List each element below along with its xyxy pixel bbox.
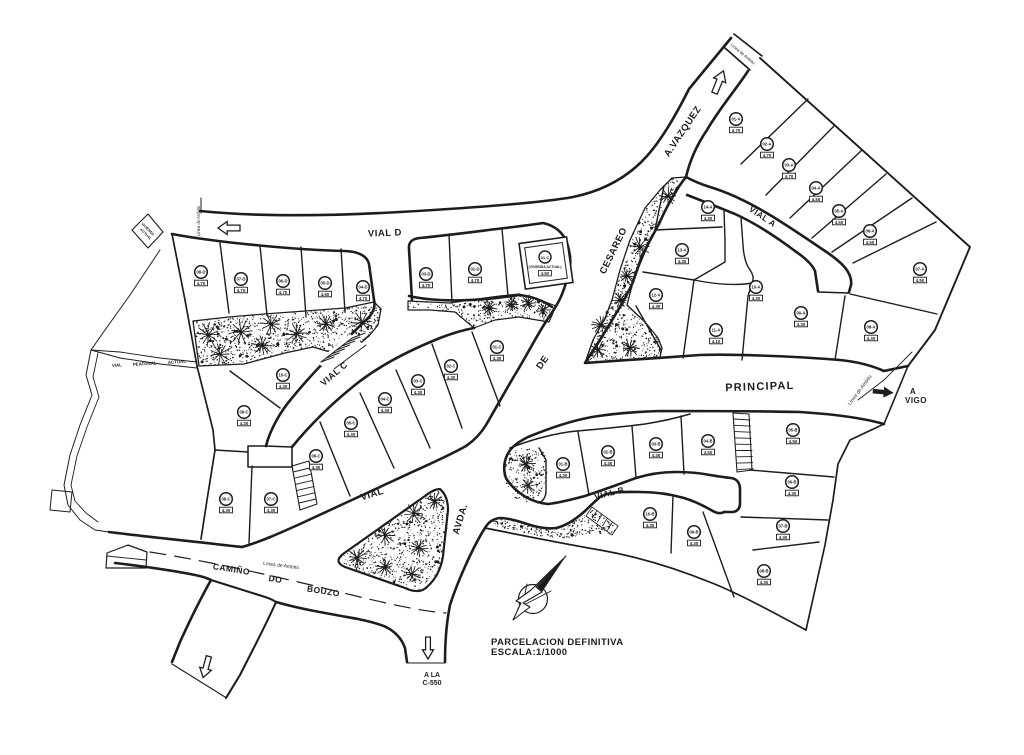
svg-text:4.55: 4.55 xyxy=(789,439,798,444)
svg-text:4.50: 4.50 xyxy=(704,450,713,455)
svg-text:11-A: 11-A xyxy=(712,328,721,333)
svg-text:06-D: 06-D xyxy=(278,279,287,284)
svg-text:4.30: 4.30 xyxy=(779,535,788,540)
svg-text:4.50: 4.50 xyxy=(812,197,821,202)
svg-text:07-A: 07-A xyxy=(915,267,924,272)
svg-text:A LA: A LA xyxy=(424,672,440,679)
svg-text:03-C: 03-C xyxy=(413,379,422,384)
svg-text:02-D: 02-D xyxy=(470,267,479,272)
svg-text:4.30: 4.30 xyxy=(867,336,876,341)
svg-text:01-C: 01-C xyxy=(541,255,550,260)
svg-text:01-C: 01-C xyxy=(492,345,501,350)
svg-text:03-D: 03-D xyxy=(421,272,430,277)
svg-text:4.30: 4.30 xyxy=(493,356,502,361)
svg-text:4.70: 4.70 xyxy=(359,296,368,301)
svg-text:4.70: 4.70 xyxy=(197,281,206,286)
svg-text:4.30: 4.30 xyxy=(267,508,276,513)
svg-text:4.70: 4.70 xyxy=(763,153,772,158)
svg-text:4.50: 4.50 xyxy=(835,220,844,225)
svg-text:05-C: 05-C xyxy=(346,421,355,426)
svg-text:02-C: 02-C xyxy=(446,364,455,369)
svg-text:4.50: 4.50 xyxy=(916,278,925,283)
svg-text:05-A: 05-A xyxy=(834,209,843,214)
svg-text:4.60: 4.60 xyxy=(321,292,330,297)
svg-text:07-D: 07-D xyxy=(236,277,245,282)
svg-text:09-A: 09-A xyxy=(796,311,805,316)
svg-text:10-A: 10-A xyxy=(751,285,760,290)
svg-text:4.30: 4.30 xyxy=(604,461,613,466)
svg-text:4.70: 4.70 xyxy=(471,278,480,283)
svg-text:10-B: 10-B xyxy=(645,512,654,517)
svg-text:05-B: 05-B xyxy=(788,428,797,433)
svg-text:01-B: 01-B xyxy=(558,462,567,467)
svg-text:VIGO: VIGO xyxy=(905,396,927,405)
svg-text:4.30: 4.30 xyxy=(559,473,568,478)
svg-text:04-C: 04-C xyxy=(380,397,389,402)
svg-text:4.30: 4.30 xyxy=(240,421,249,426)
svg-text:4.70: 4.70 xyxy=(785,174,794,179)
svg-text:4.50: 4.50 xyxy=(866,240,875,245)
svg-text:4.30: 4.30 xyxy=(652,453,661,458)
svg-text:06-A: 06-A xyxy=(865,229,874,234)
svg-text:07-C: 07-C xyxy=(266,497,275,502)
svg-text:VIAL: VIAL xyxy=(112,362,123,368)
svg-text:01-A: 01-A xyxy=(731,117,740,122)
svg-text:02-A: 02-A xyxy=(762,142,771,147)
svg-text:12-A: 12-A xyxy=(651,293,660,298)
svg-text:4.30: 4.30 xyxy=(381,408,390,413)
svg-text:PRINCIPAL: PRINCIPAL xyxy=(725,380,795,394)
svg-text:4.70: 4.70 xyxy=(237,288,246,293)
svg-text:4.30: 4.30 xyxy=(279,384,288,389)
svg-text:4.30: 4.30 xyxy=(447,375,456,380)
svg-text:06-B: 06-B xyxy=(787,480,796,485)
svg-text:C-550: C-550 xyxy=(422,680,441,687)
svg-text:4.30: 4.30 xyxy=(347,432,356,437)
svg-text:DO: DO xyxy=(268,573,283,585)
svg-text:4.70: 4.70 xyxy=(732,128,741,133)
svg-text:08-D: 08-D xyxy=(196,270,205,275)
svg-text:4.30: 4.30 xyxy=(752,296,761,301)
svg-text:06-C: 06-C xyxy=(311,454,320,459)
svg-text:09-C: 09-C xyxy=(239,410,248,415)
svg-text:4.30: 4.30 xyxy=(797,322,806,327)
svg-text:4.70: 4.70 xyxy=(422,283,431,288)
svg-text:4.30: 4.30 xyxy=(678,259,687,264)
svg-text:02-B: 02-B xyxy=(603,450,612,455)
svg-text:07-B: 07-B xyxy=(778,524,787,529)
svg-text:04-A: 04-A xyxy=(811,186,820,191)
svg-text:10-C: 10-C xyxy=(278,373,287,378)
svg-text:Línea do Ambito: Línea do Ambito xyxy=(196,205,201,236)
svg-text:ESCALA:1/1000: ESCALA:1/1000 xyxy=(491,647,567,658)
svg-text:04-B: 04-B xyxy=(703,439,712,444)
svg-text:4.30: 4.30 xyxy=(312,465,321,470)
svg-text:4.30: 4.30 xyxy=(414,390,423,395)
svg-text:4.30: 4.30 xyxy=(704,216,713,221)
svg-text:08-B: 08-B xyxy=(759,569,768,574)
svg-text:4.30: 4.30 xyxy=(646,523,655,528)
svg-text:04-D: 04-D xyxy=(358,285,367,290)
svg-text:(VIVIENDA ACTUAL): (VIVIENDA ACTUAL) xyxy=(529,265,562,269)
svg-text:4.30: 4.30 xyxy=(652,304,661,309)
svg-text:03-B: 03-B xyxy=(651,442,660,447)
svg-text:08-A: 08-A xyxy=(866,325,875,330)
svg-text:14-A: 14-A xyxy=(703,205,712,210)
svg-text:4.30: 4.30 xyxy=(788,491,797,496)
svg-text:13-A: 13-A xyxy=(677,248,686,253)
svg-text:03-A: 03-A xyxy=(784,163,793,168)
svg-text:4.30: 4.30 xyxy=(690,541,699,546)
svg-text:4.10: 4.10 xyxy=(712,339,721,344)
svg-text:4.70: 4.70 xyxy=(279,290,288,295)
svg-text:A: A xyxy=(910,387,916,396)
svg-text:08-C: 08-C xyxy=(221,497,230,502)
svg-text:4.30: 4.30 xyxy=(760,580,769,585)
svg-text:4.50: 4.50 xyxy=(541,271,550,276)
svg-text:05-D: 05-D xyxy=(320,281,329,286)
svg-text:4.30: 4.30 xyxy=(222,508,231,513)
svg-text:VIAL D: VIAL D xyxy=(368,227,402,239)
svg-text:09-B: 09-B xyxy=(689,530,698,535)
